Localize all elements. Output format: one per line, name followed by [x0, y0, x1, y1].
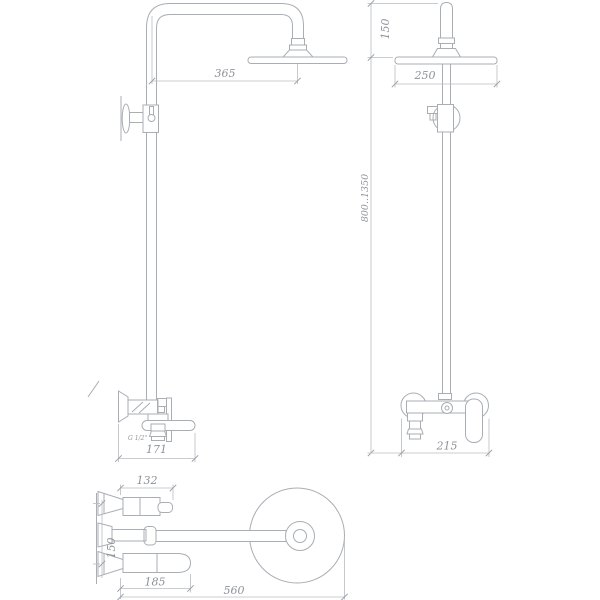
dim-label-215: 215: [436, 440, 458, 453]
mixer-body-front: [407, 401, 476, 413]
rain-head-side: [248, 57, 347, 64]
spout-flare: [150, 431, 167, 437]
cartridge-cap: [442, 403, 453, 414]
bracket-flange-side: [122, 104, 130, 133]
dim-label-800-1350: 800..1350: [360, 174, 371, 222]
spout-front: [410, 421, 421, 429]
shower-arm-bend: [157, 15, 293, 45]
dim-label-150-top: 150: [105, 538, 118, 559]
shower-arm-bend: [147, 4, 304, 45]
drawing-svg: 365 171 G 1/2": [0, 0, 600, 600]
dim-label-185: 185: [145, 576, 166, 589]
spout-tip: [152, 437, 165, 441]
head-joint: [441, 44, 453, 49]
head-connector: [292, 39, 305, 46]
spout-step: [151, 424, 165, 431]
technical-drawing-canvas: 365 171 G 1/2": [0, 0, 600, 600]
front-view: 150 800..1350 250 215: [360, 0, 500, 457]
dim-label-560: 560: [224, 584, 245, 597]
diverter-side: [158, 399, 167, 407]
spout-front: [408, 413, 423, 421]
shower-arm-plan: [156, 531, 286, 542]
dim-label-171: 171: [146, 443, 167, 456]
riser-joint: [439, 394, 452, 400]
dim-label-150-front: 150: [379, 19, 392, 40]
thread-label: G 1/2": [128, 435, 147, 442]
diverter-side: [158, 407, 165, 413]
bracket-arm-side: [130, 113, 144, 123]
head-cone-front: [433, 49, 461, 58]
lever-handle-front: [466, 399, 483, 443]
dim-front-head-diameter: [392, 65, 500, 88]
mixer-body-plan: [123, 498, 160, 516]
head-hub-ring: [286, 522, 315, 551]
dim-label-132: 132: [137, 474, 158, 487]
dim-label-365: 365: [215, 67, 236, 80]
side-view: 365 171 G 1/2": [88, 4, 347, 463]
spout-tip-front: [410, 434, 421, 439]
diverter-knob-plan: [158, 503, 173, 513]
lever-handle-side: [142, 421, 195, 431]
escutcheon-side: [119, 391, 129, 422]
spout-flare-front: [407, 429, 423, 434]
rain-head-front: [395, 57, 497, 64]
top-view: 132 150 185 560: [93, 474, 348, 600]
head-cone: [283, 50, 313, 57]
dim-label-250: 250: [414, 69, 436, 82]
head-joint: [439, 38, 455, 44]
top-pipe-cap: [441, 3, 453, 39]
bracket-slider-front: [438, 105, 454, 133]
mixer-tick: [88, 381, 99, 397]
head-connector: [290, 45, 307, 50]
bracket-knob: [148, 115, 155, 122]
